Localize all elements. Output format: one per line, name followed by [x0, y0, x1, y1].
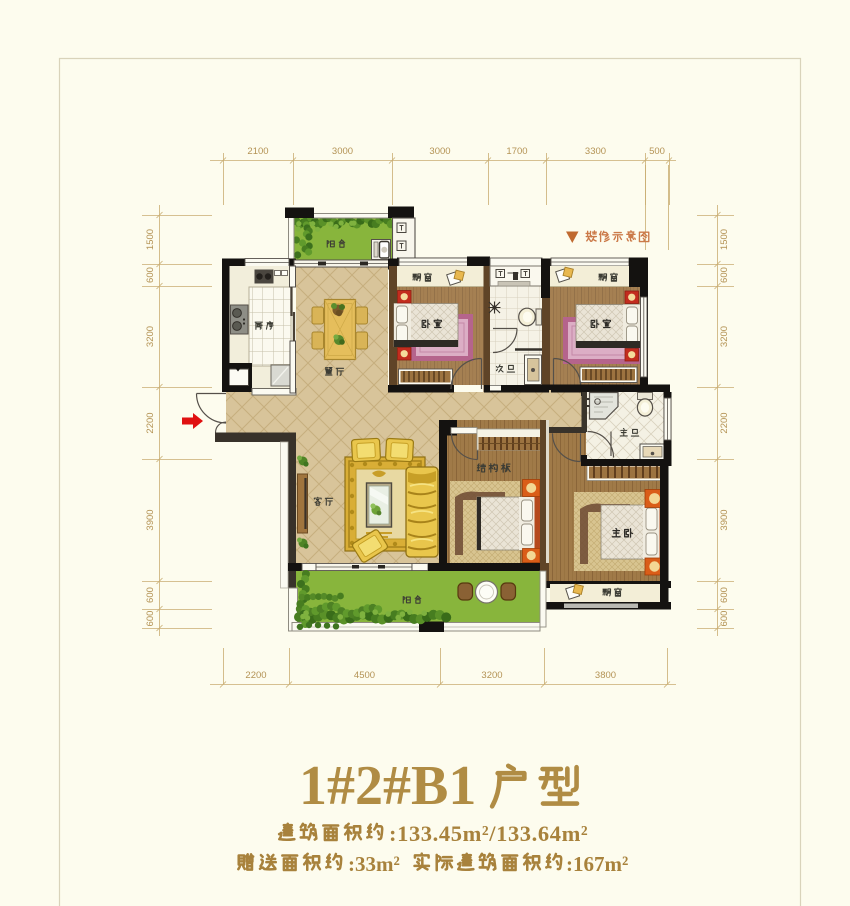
- svg-text:2200: 2200: [245, 670, 266, 681]
- svg-text:1700: 1700: [506, 146, 527, 157]
- svg-text:1500: 1500: [145, 229, 156, 250]
- svg-text::133.45m²/133.64m²: :133.45m²/133.64m²: [389, 821, 588, 846]
- svg-text:3000: 3000: [332, 146, 353, 157]
- svg-text:500: 500: [649, 146, 665, 157]
- svg-text:600: 600: [719, 611, 730, 627]
- svg-text:2100: 2100: [247, 146, 268, 157]
- svg-text:3900: 3900: [145, 509, 156, 530]
- svg-text:600: 600: [145, 587, 156, 603]
- svg-text:3800: 3800: [595, 670, 616, 681]
- svg-text:3200: 3200: [719, 326, 730, 347]
- svg-text:3900: 3900: [719, 509, 730, 530]
- svg-text:1500: 1500: [719, 229, 730, 250]
- svg-text:4500: 4500: [354, 670, 375, 681]
- svg-text:600: 600: [145, 267, 156, 283]
- svg-text:1#2#B1: 1#2#B1: [299, 755, 476, 817]
- svg-text:3300: 3300: [585, 146, 606, 157]
- svg-text:3200: 3200: [145, 326, 156, 347]
- svg-text:3200: 3200: [481, 670, 502, 681]
- svg-text:3000: 3000: [429, 146, 450, 157]
- svg-text:2200: 2200: [719, 412, 730, 433]
- svg-text:600: 600: [145, 611, 156, 627]
- svg-text:600: 600: [719, 267, 730, 283]
- svg-text::33m²: :33m²: [348, 852, 400, 876]
- svg-text:2200: 2200: [145, 412, 156, 433]
- svg-text::167m²: :167m²: [566, 852, 628, 876]
- svg-text:600: 600: [719, 587, 730, 603]
